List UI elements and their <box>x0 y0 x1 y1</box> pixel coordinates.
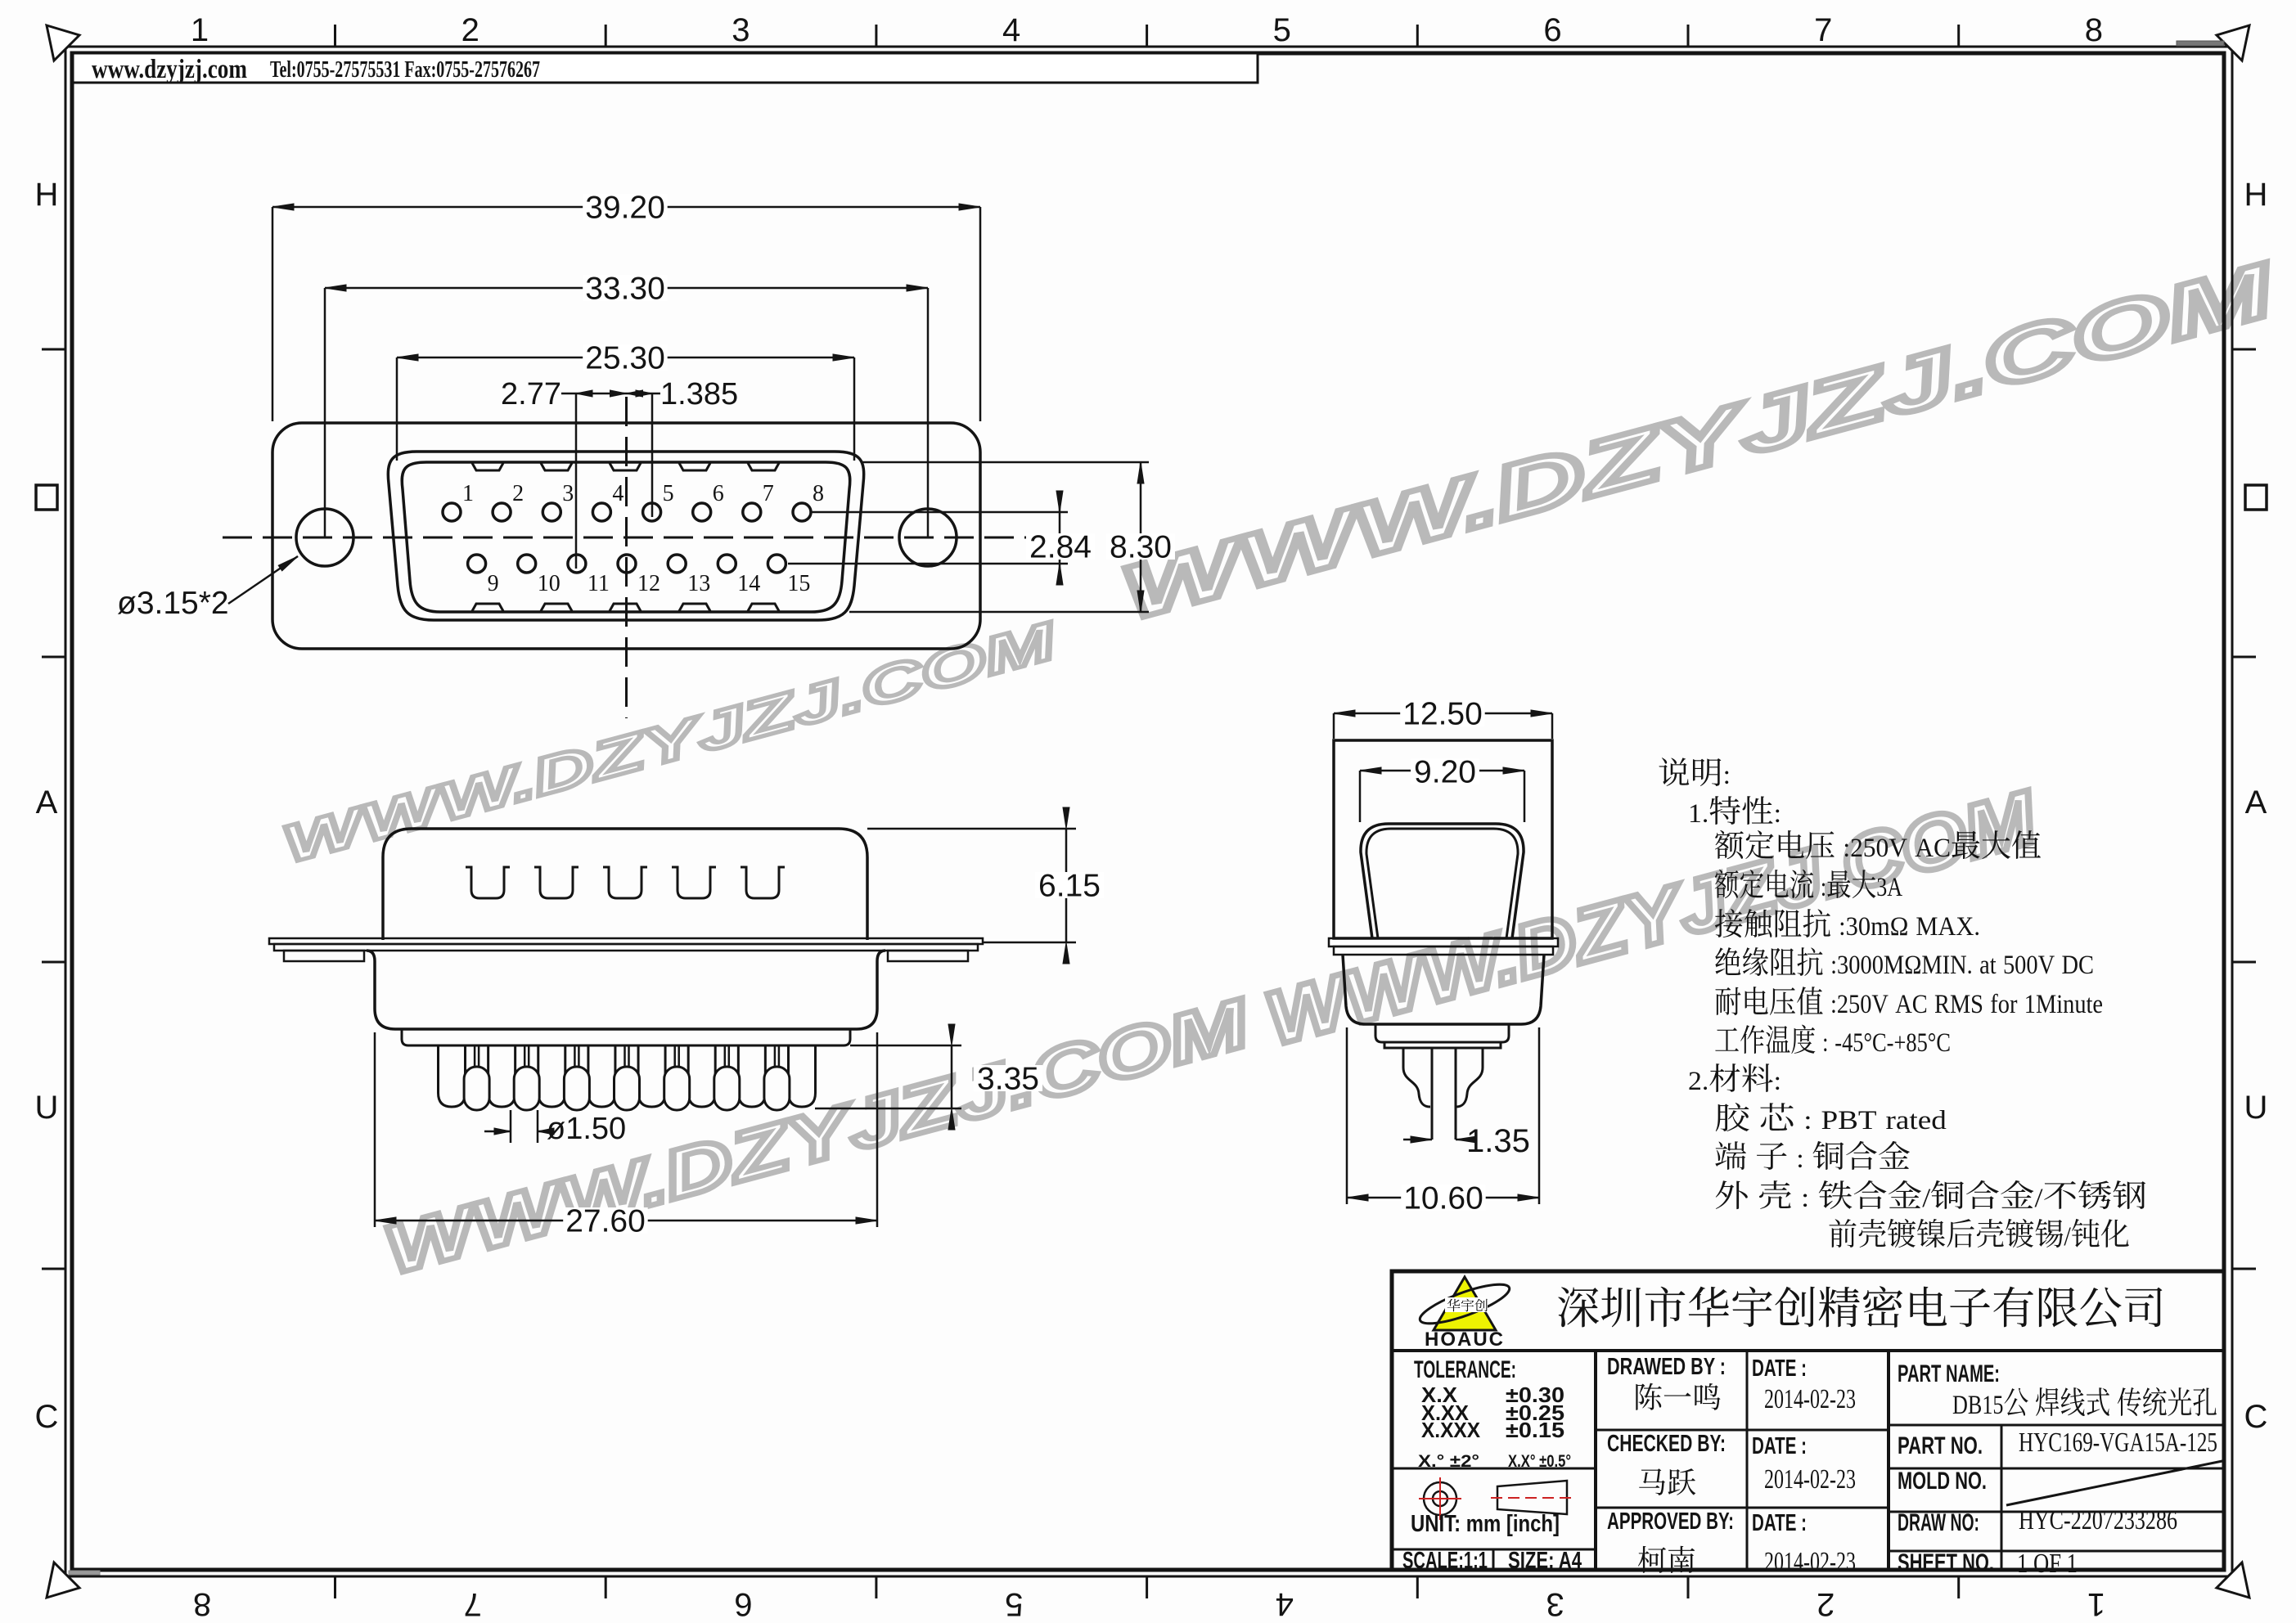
svg-text:3.35: 3.35 <box>977 1061 1039 1096</box>
svg-text:14: 14 <box>737 571 760 596</box>
svg-text:33.30: 33.30 <box>585 271 665 306</box>
svg-text:3: 3 <box>1546 1586 1564 1622</box>
svg-text:2014-02-23: 2014-02-23 <box>1764 1464 1856 1495</box>
svg-text:15: 15 <box>787 571 810 596</box>
svg-text:SIZE: A4: SIZE: A4 <box>1508 1548 1582 1574</box>
svg-text:SHEET NO.: SHEET NO. <box>1898 1549 1994 1576</box>
svg-text:1.35: 1.35 <box>1466 1123 1530 1159</box>
svg-text:PBT: PBT <box>1821 1105 1877 1135</box>
svg-text:MAX.: MAX. <box>1916 911 1980 941</box>
svg-text:/: / <box>1922 1184 1931 1213</box>
svg-text:6: 6 <box>713 481 724 506</box>
svg-text:DATE :: DATE : <box>1752 1355 1807 1382</box>
svg-text::250V: :250V <box>1830 989 1889 1018</box>
svg-text:ø3.15*2: ø3.15*2 <box>117 586 229 621</box>
svg-text::: : <box>1774 1068 1781 1096</box>
svg-text:5: 5 <box>663 481 674 506</box>
svg-text:U: U <box>35 1090 59 1126</box>
svg-text:X.XXX: X.XXX <box>1421 1418 1481 1442</box>
svg-text:6.15: 6.15 <box>1038 868 1101 903</box>
svg-text:C: C <box>35 1399 59 1435</box>
svg-text:A: A <box>2245 785 2267 820</box>
svg-text:2.77: 2.77 <box>501 377 561 411</box>
svg-text:1.385: 1.385 <box>660 377 738 411</box>
svg-text:H: H <box>2244 177 2268 213</box>
svg-text:2.: 2. <box>1688 1068 1708 1096</box>
svg-text:1: 1 <box>2087 1586 2105 1622</box>
svg-text::: : <box>1821 873 1826 901</box>
svg-text:X.X° ±0.5°: X.X° ±0.5° <box>1508 1452 1571 1471</box>
svg-text:4: 4 <box>1276 1586 1294 1622</box>
svg-text:H: H <box>35 177 59 213</box>
svg-text:SCALE:1:1: SCALE:1:1 <box>1402 1548 1488 1574</box>
svg-text::250V: :250V <box>1843 834 1907 862</box>
svg-text:5: 5 <box>1273 12 1291 48</box>
svg-text::: : <box>1774 800 1781 829</box>
svg-text:HOAUC: HOAUC <box>1425 1329 1505 1351</box>
svg-text:12: 12 <box>637 571 660 596</box>
svg-text:2014-02-23: 2014-02-23 <box>1764 1384 1856 1414</box>
svg-text:MOLD NO.: MOLD NO. <box>1898 1468 1987 1495</box>
svg-text:8.30: 8.30 <box>1110 529 1172 564</box>
svg-text:3A: 3A <box>1876 873 1902 901</box>
svg-text::: : <box>1801 1184 1809 1213</box>
svg-text:9.20: 9.20 <box>1414 754 1476 789</box>
svg-text:6: 6 <box>1543 12 1561 48</box>
svg-text:/: / <box>2035 1184 2044 1213</box>
svg-text:at: at <box>1979 950 1997 979</box>
svg-text:8: 8 <box>193 1586 211 1622</box>
svg-text:1: 1 <box>191 12 209 48</box>
svg-text:1Minute: 1Minute <box>2024 989 2103 1018</box>
svg-text:CHECKED BY:: CHECKED BY: <box>1607 1431 1726 1457</box>
svg-text:9: 9 <box>488 571 499 596</box>
svg-text:AC: AC <box>1895 989 1927 1018</box>
svg-text:X.° ±2°: X.° ±2° <box>1418 1452 1479 1471</box>
svg-text:Tel:0755-27575531 Fax:0755-27: Tel:0755-27575531 Fax:0755-27576267 <box>270 56 540 83</box>
svg-text:DATE :: DATE : <box>1752 1510 1807 1536</box>
svg-text:2.84: 2.84 <box>1029 529 1092 564</box>
svg-text:ø1.50: ø1.50 <box>547 1112 626 1146</box>
svg-text:39.20: 39.20 <box>585 190 665 225</box>
svg-text:RMS: RMS <box>1934 989 1983 1018</box>
svg-text:2: 2 <box>512 481 524 506</box>
svg-text:7: 7 <box>464 1586 482 1622</box>
svg-text::: : <box>1822 1029 1828 1058</box>
svg-text:PART NO.: PART NO. <box>1898 1432 1983 1459</box>
svg-text:for: for <box>1990 989 2017 1018</box>
svg-text:13: 13 <box>687 571 710 596</box>
svg-text:500V: 500V <box>2003 950 2055 979</box>
svg-text:7: 7 <box>763 481 774 506</box>
svg-text:5: 5 <box>1005 1586 1023 1622</box>
svg-text:HYC169-VGA15A-125: HYC169-VGA15A-125 <box>2019 1427 2217 1458</box>
svg-text:3: 3 <box>732 12 750 48</box>
svg-text:25.30: 25.30 <box>585 340 665 375</box>
svg-text:4: 4 <box>612 481 624 506</box>
svg-text:12.50: 12.50 <box>1402 696 1483 731</box>
svg-text:DRAW NO:: DRAW NO: <box>1898 1509 1979 1536</box>
svg-text:6: 6 <box>734 1586 752 1622</box>
svg-text:10.60: 10.60 <box>1403 1180 1483 1216</box>
svg-text:3: 3 <box>562 481 574 506</box>
svg-text:DRAWED BY :: DRAWED BY : <box>1607 1354 1726 1380</box>
svg-text:1: 1 <box>462 481 474 506</box>
svg-text:1.: 1. <box>1688 800 1708 829</box>
svg-text::: : <box>1796 1144 1803 1174</box>
svg-text:rated: rated <box>1886 1105 1947 1135</box>
svg-text:2: 2 <box>1817 1586 1835 1622</box>
svg-text:PART NAME:: PART NAME: <box>1898 1360 2000 1387</box>
svg-text:7: 7 <box>1814 12 1832 48</box>
svg-text:AC: AC <box>1915 834 1951 862</box>
svg-text:2014-02-23: 2014-02-23 <box>1764 1547 1856 1577</box>
svg-text:-45°C-+85°C: -45°C-+85°C <box>1835 1029 1951 1058</box>
svg-text:1 OF 1: 1 OF 1 <box>2017 1549 2078 1579</box>
svg-text:2: 2 <box>461 12 479 48</box>
svg-text:27.60: 27.60 <box>565 1203 646 1239</box>
svg-text:C: C <box>2244 1399 2268 1435</box>
svg-text:8: 8 <box>2085 12 2103 48</box>
svg-text:DB15: DB15 <box>1952 1391 2004 1420</box>
svg-text:TOLERANCE:: TOLERANCE: <box>1414 1356 1516 1383</box>
svg-text:www.dzyjzj.com: www.dzyjzj.com <box>92 55 247 84</box>
svg-text:±0.15: ±0.15 <box>1506 1418 1564 1442</box>
svg-text:4: 4 <box>1002 12 1020 48</box>
svg-text:HYC-2207233286: HYC-2207233286 <box>2019 1505 2177 1535</box>
svg-text:/: / <box>2064 1221 2071 1251</box>
svg-text:8: 8 <box>813 481 824 506</box>
svg-text:10: 10 <box>538 571 560 596</box>
svg-text::30mΩ: :30mΩ <box>1839 911 1908 941</box>
svg-text:11: 11 <box>588 571 610 596</box>
svg-text::: : <box>1803 1105 1812 1135</box>
svg-text:DC: DC <box>2062 950 2095 979</box>
svg-text:DATE :: DATE : <box>1752 1433 1807 1459</box>
svg-text:APPROVED BY:: APPROVED BY: <box>1607 1508 1734 1535</box>
svg-text::: : <box>1723 762 1731 790</box>
svg-text:U: U <box>2244 1090 2268 1126</box>
svg-text:A: A <box>36 785 58 820</box>
svg-text:UNIT: mm [inch]: UNIT: mm [inch] <box>1411 1511 1560 1537</box>
svg-text::3000MΩMIN.: :3000MΩMIN. <box>1830 950 1973 979</box>
